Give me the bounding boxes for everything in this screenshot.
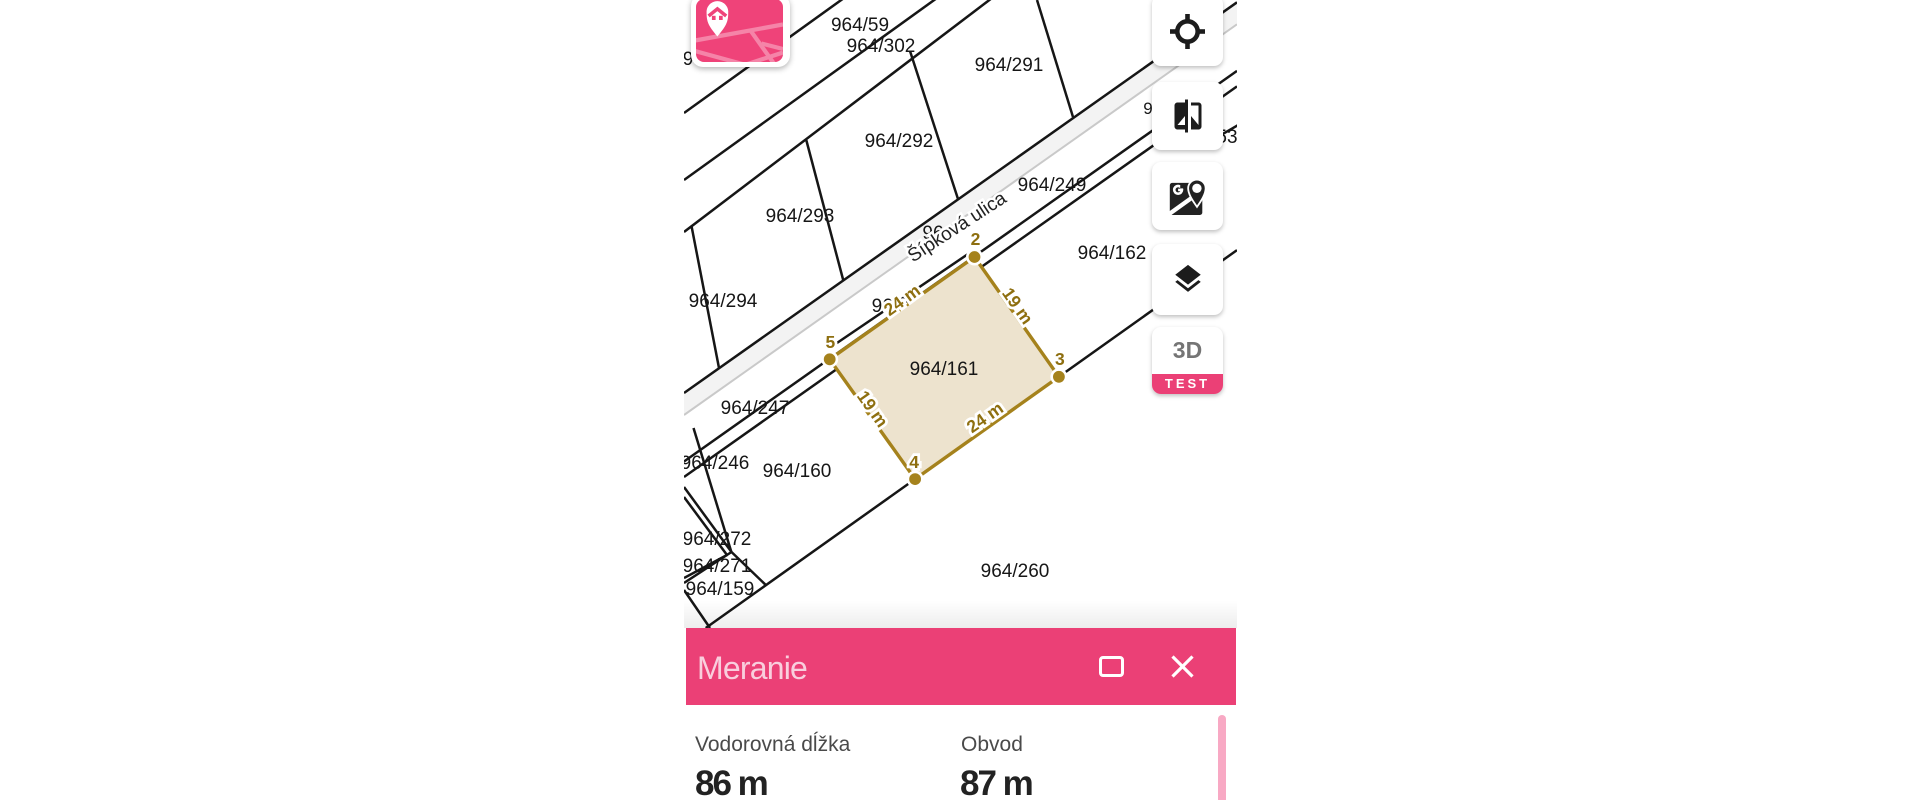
svg-text:964/160: 964/160 [763,461,832,482]
svg-text:964/294: 964/294 [689,291,758,312]
svg-text:964/162: 964/162 [1078,243,1147,264]
svg-text:964/159: 964/159 [686,579,755,600]
svg-text:964/59: 964/59 [831,15,889,36]
svg-text:2: 2 [971,229,981,249]
svg-text:964/293: 964/293 [766,206,835,227]
svg-text:3: 3 [1055,349,1065,369]
svg-text:964/302: 964/302 [847,36,916,57]
svg-text:964/292: 964/292 [865,131,934,152]
svg-text:964/247: 964/247 [721,398,790,419]
svg-text:964/291: 964/291 [975,55,1044,76]
svg-text:964/249: 964/249 [1018,175,1087,196]
svg-text:4: 4 [909,452,919,472]
svg-text:964/161: 964/161 [910,359,979,380]
svg-text:964/246: 964/246 [684,453,749,474]
svg-text:5: 5 [826,332,836,352]
svg-text:964/272: 964/272 [684,529,751,550]
svg-text:964/260: 964/260 [981,561,1050,582]
svg-text:964/271: 964/271 [684,556,751,577]
